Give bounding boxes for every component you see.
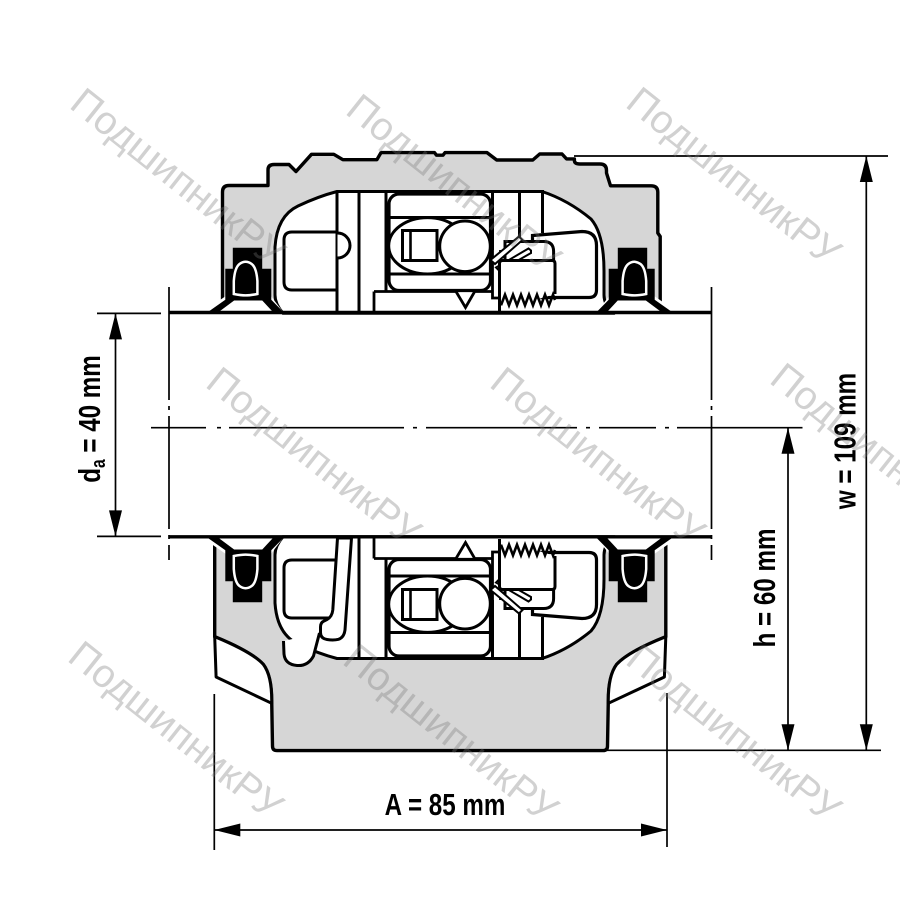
svg-text:h = 60 mm: h = 60 mm [747,529,782,648]
svg-text:A = 85 mm: A = 85 mm [385,787,506,822]
